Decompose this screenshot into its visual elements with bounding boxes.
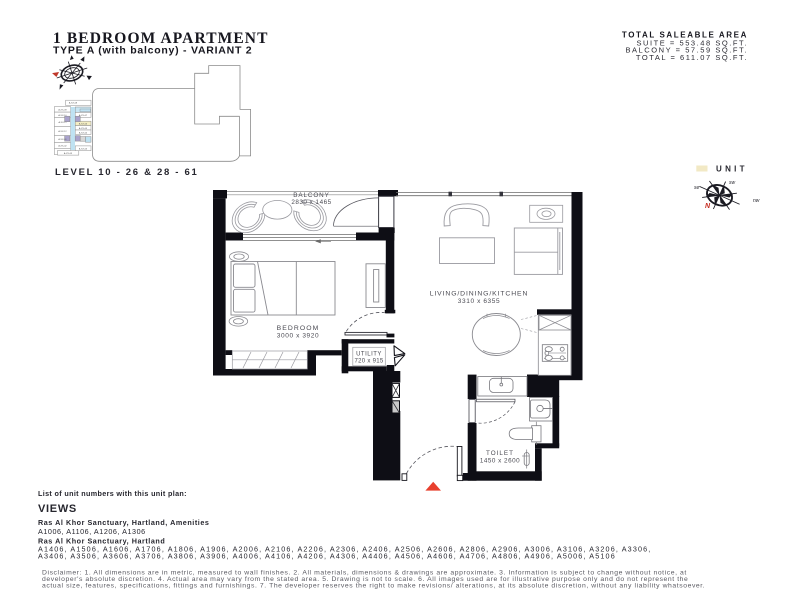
svg-text:nw: nw bbox=[753, 198, 760, 204]
svg-text:Ras Al Khor Sanctuary, Hartlan: Ras Al Khor Sanctuary, Hartland, Ameniti… bbox=[38, 518, 209, 527]
svg-text:A-XX-03: A-XX-03 bbox=[79, 148, 88, 151]
svg-text:A3406, A3506, A3606, A3706, A3: A3406, A3506, A3606, A3706, A3806, A3906… bbox=[38, 552, 616, 561]
svg-text:2830 x 1465: 2830 x 1465 bbox=[291, 199, 331, 206]
svg-text:TYPE A (with balcony) - VARIA: TYPE A (with balcony) - VARIANT 2 bbox=[53, 45, 252, 57]
svg-text:A-XX-11: A-XX-11 bbox=[58, 121, 67, 124]
svg-text:A-XX-04: A-XX-04 bbox=[79, 131, 88, 134]
svg-text:BALCONY: BALCONY bbox=[293, 192, 329, 199]
svg-text:A-XX-10: A-XX-10 bbox=[58, 114, 67, 117]
svg-text:BEDROOM: BEDROOM bbox=[277, 325, 320, 332]
svg-text:3310 x 6355: 3310 x 6355 bbox=[458, 298, 500, 305]
svg-text:actual size, features, specifi: actual size, features, specifications, f… bbox=[42, 583, 705, 590]
svg-text:A-XX-03: A-XX-03 bbox=[64, 152, 73, 155]
svg-text:A-XX-06: A-XX-06 bbox=[79, 123, 88, 126]
svg-text:A-XX-01: A-XX-01 bbox=[58, 138, 67, 141]
svg-text:1450 x 2600: 1450 x 2600 bbox=[480, 458, 520, 465]
svg-text:UNIT: UNIT bbox=[716, 165, 748, 174]
svg-text:A-XX-07: A-XX-07 bbox=[79, 114, 88, 117]
svg-text:UTILITY: UTILITY bbox=[356, 352, 382, 358]
svg-text:A-XX-12: A-XX-12 bbox=[58, 130, 67, 133]
svg-text:se: se bbox=[694, 185, 700, 191]
svg-text:A-XX-05: A-XX-05 bbox=[79, 127, 88, 130]
svg-text:A1006, A1106, A1206, A1306: A1006, A1106, A1206, A1306 bbox=[38, 527, 146, 536]
svg-text:TOTAL = 611.07 SQ.FT.: TOTAL = 611.07 SQ.FT. bbox=[636, 53, 748, 62]
svg-text:LIVING/DINING/KITCHEN: LIVING/DINING/KITCHEN bbox=[430, 291, 529, 298]
svg-text:A-XX-08: A-XX-08 bbox=[69, 102, 78, 105]
svg-text:TOILET: TOILET bbox=[486, 450, 514, 457]
svg-text:720 x 915: 720 x 915 bbox=[354, 359, 383, 365]
svg-text:List of unit numbers with this: List of unit numbers with this unit plan… bbox=[38, 489, 187, 498]
svg-text:sw: sw bbox=[729, 180, 736, 186]
svg-text:A-XX-09: A-XX-09 bbox=[58, 108, 67, 111]
svg-text:A-XX-02: A-XX-02 bbox=[58, 144, 67, 147]
svg-text:VIEWS: VIEWS bbox=[38, 503, 77, 515]
svg-text:3000 x 3920: 3000 x 3920 bbox=[277, 333, 319, 340]
svg-text:LEVEL 10 - 26 & 28 - 61: LEVEL 10 - 26 & 28 - 61 bbox=[55, 167, 198, 178]
svg-text:N: N bbox=[705, 203, 711, 210]
